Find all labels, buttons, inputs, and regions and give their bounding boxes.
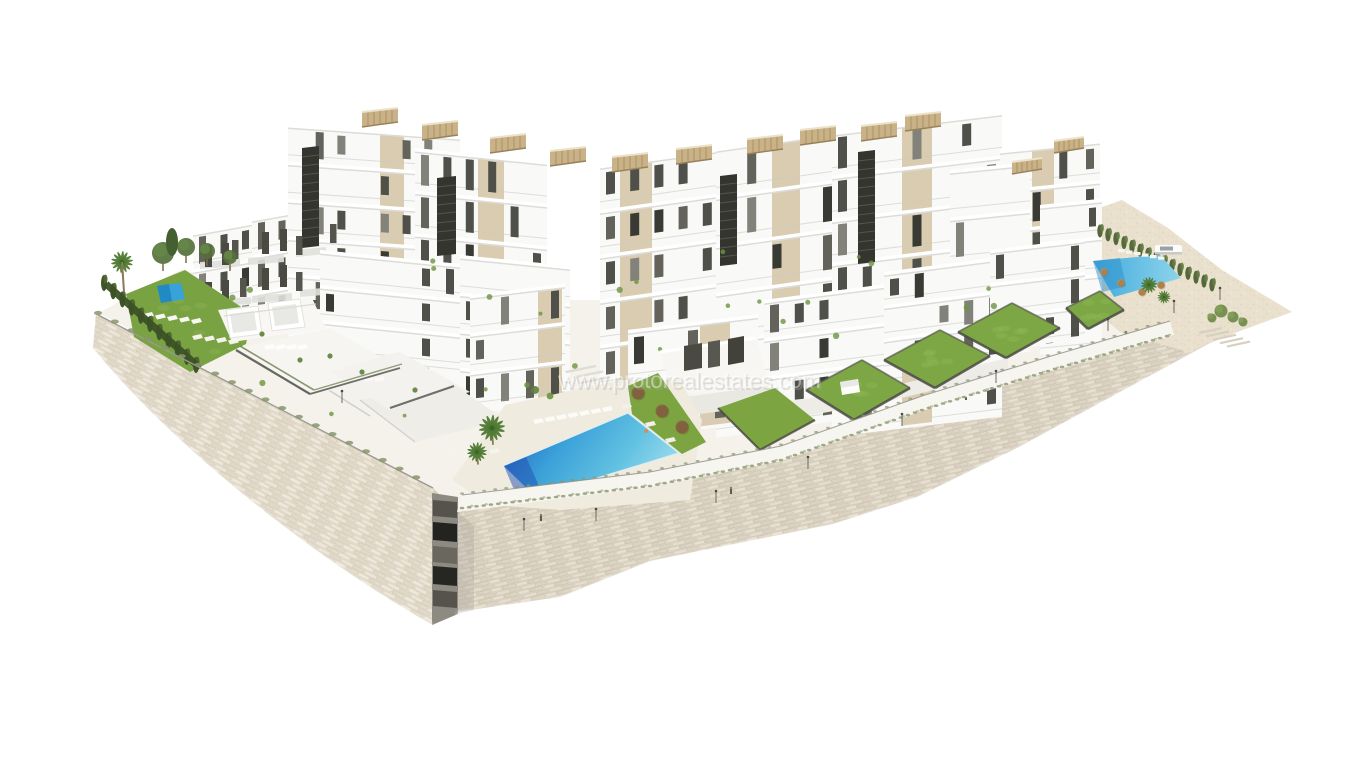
svg-text:www.protorealestates.com: www.protorealestates.com bbox=[557, 367, 821, 393]
